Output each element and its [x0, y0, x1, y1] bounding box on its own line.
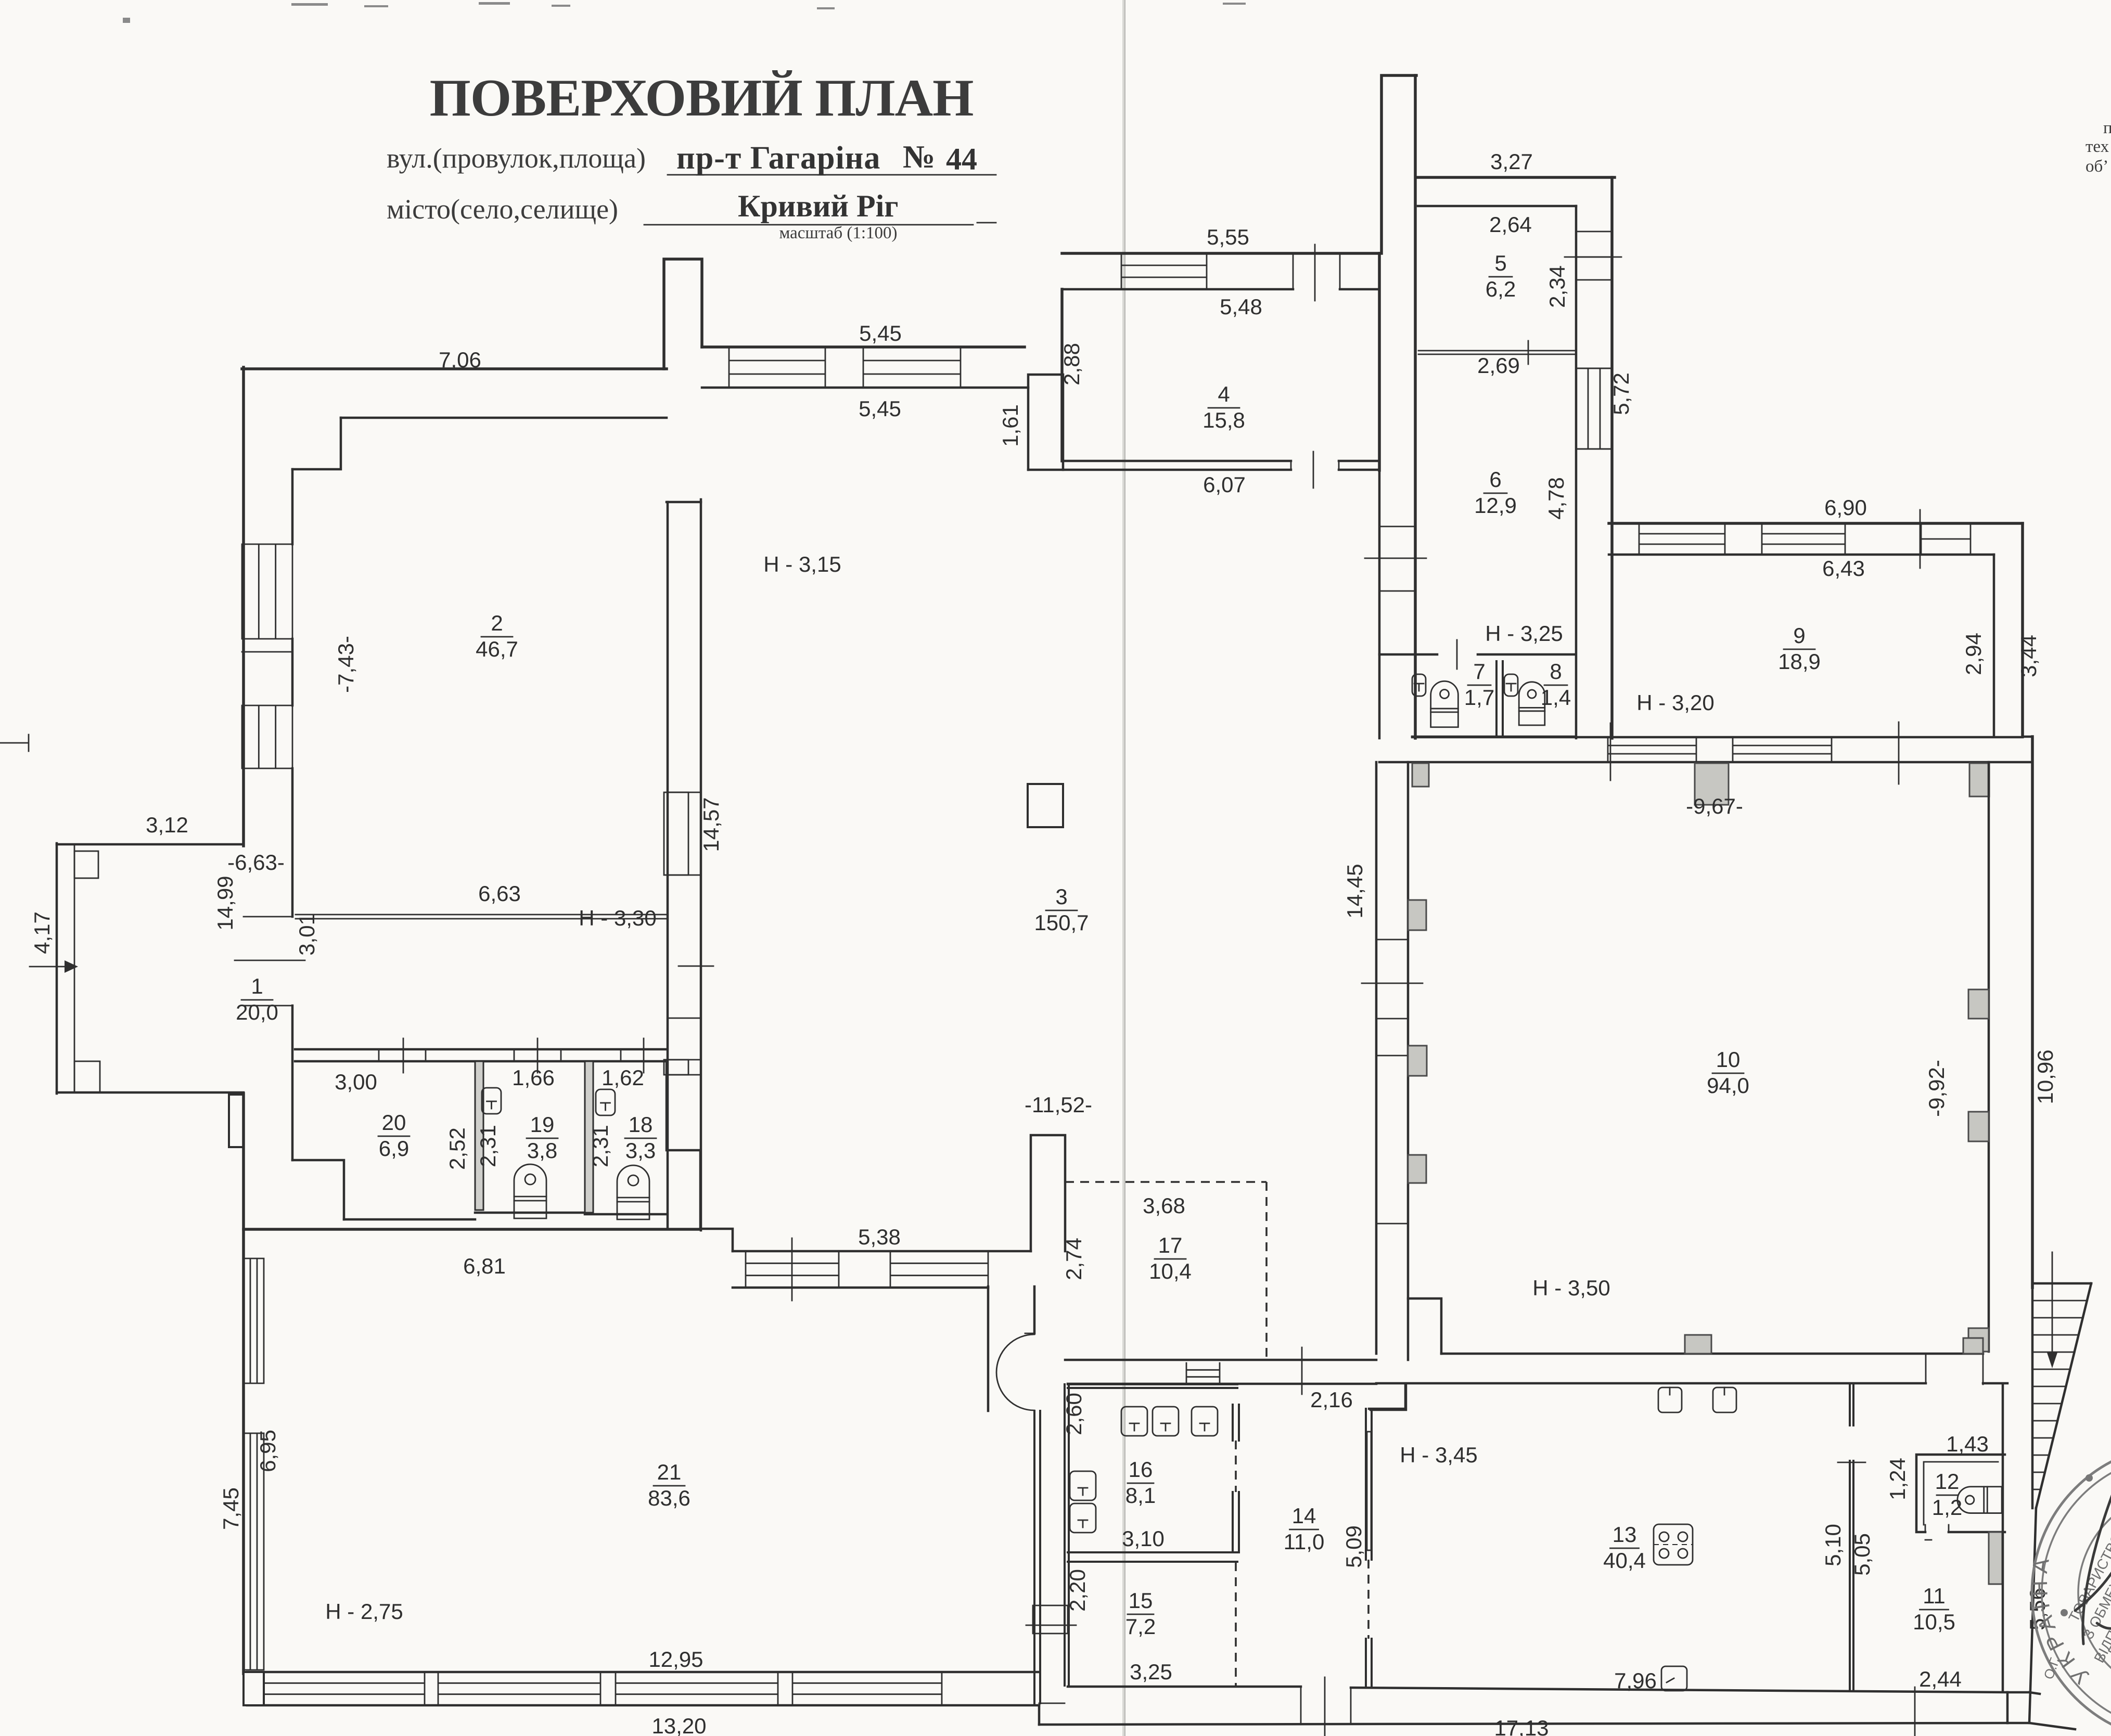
svg-text:3,10: 3,10: [1122, 1526, 1165, 1551]
svg-text:6: 6: [1489, 467, 1501, 492]
svg-text:Кривий Ріг: Кривий Ріг: [738, 189, 899, 223]
svg-text:2,88: 2,88: [1059, 343, 1084, 385]
svg-text:пр-т Гагаріна: пр-т Гагаріна: [676, 140, 880, 176]
svg-text:15,8: 15,8: [1202, 408, 1245, 432]
svg-text:6,2: 6,2: [1486, 277, 1516, 301]
svg-text:10,5: 10,5: [1913, 1610, 1955, 1634]
svg-text:8,1: 8,1: [1125, 1483, 1156, 1508]
svg-text:10: 10: [1716, 1047, 1741, 1072]
svg-text:14: 14: [1292, 1503, 1316, 1528]
svg-text:5,48: 5,48: [1220, 294, 1262, 319]
svg-text:3,00: 3,00: [335, 1070, 377, 1094]
svg-text:9: 9: [1793, 623, 1805, 648]
svg-text:3,44: 3,44: [2016, 635, 2041, 677]
svg-text:2,44: 2,44: [1919, 1667, 1962, 1691]
svg-text:Н - 3,50: Н - 3,50: [1532, 1276, 1610, 1300]
svg-text:-7,43-: -7,43-: [334, 636, 358, 693]
svg-text:1: 1: [251, 974, 263, 998]
svg-text:4: 4: [1218, 382, 1230, 406]
svg-text:1,62: 1,62: [602, 1065, 644, 1090]
svg-text:18,9: 18,9: [1778, 649, 1821, 674]
svg-text:12,9: 12,9: [1474, 493, 1517, 518]
svg-text:5,55: 5,55: [1207, 225, 1249, 249]
svg-text:Н - 3,20: Н - 3,20: [1636, 690, 1714, 715]
svg-text:2,94: 2,94: [1961, 633, 1986, 675]
svg-text:17,13: 17,13: [1494, 1716, 1549, 1736]
svg-text:6,95: 6,95: [255, 1430, 280, 1472]
svg-text:44: 44: [946, 142, 977, 176]
svg-text:3,25: 3,25: [1130, 1660, 1172, 1684]
svg-text:Н - 3,25: Н - 3,25: [1485, 621, 1563, 646]
svg-text:5,38: 5,38: [858, 1225, 901, 1249]
svg-text:1,43: 1,43: [1946, 1432, 1989, 1456]
svg-text:3,12: 3,12: [146, 813, 188, 837]
svg-text:11: 11: [1923, 1584, 1946, 1608]
svg-text:6,63: 6,63: [478, 881, 521, 906]
svg-text:21: 21: [657, 1460, 682, 1484]
svg-text:-6,63-: -6,63-: [227, 850, 285, 875]
svg-text:8: 8: [1550, 659, 1562, 684]
svg-text:6,90: 6,90: [1824, 495, 1867, 520]
svg-text:Н - 3,30: Н - 3,30: [579, 906, 656, 930]
svg-text:5,09: 5,09: [1341, 1525, 1366, 1568]
svg-text:4,78: 4,78: [1544, 477, 1568, 520]
svg-text:20: 20: [382, 1110, 406, 1135]
svg-text:1,4: 1,4: [1541, 685, 1571, 710]
svg-text:3,68: 3,68: [1143, 1193, 1185, 1218]
svg-text:14,99: 14,99: [213, 876, 237, 930]
svg-text:2,74: 2,74: [1061, 1238, 1086, 1280]
svg-text:3: 3: [1055, 884, 1067, 909]
svg-text:2,69: 2,69: [1477, 353, 1520, 378]
svg-text:3,27: 3,27: [1490, 149, 1533, 174]
svg-text:1,66: 1,66: [512, 1065, 555, 1090]
svg-text:94,0: 94,0: [1707, 1073, 1749, 1098]
svg-text:2,52: 2,52: [445, 1127, 469, 1170]
svg-text:1,7: 1,7: [1464, 685, 1494, 710]
svg-text:об’: об’: [2086, 157, 2108, 176]
svg-text:7,2: 7,2: [1125, 1614, 1156, 1639]
svg-text:5,45: 5,45: [859, 321, 902, 345]
svg-text:15: 15: [1129, 1588, 1153, 1613]
svg-text:-9,67-: -9,67-: [1686, 794, 1743, 818]
svg-text:17: 17: [1158, 1233, 1183, 1257]
svg-text:18: 18: [629, 1112, 653, 1137]
svg-text:6,07: 6,07: [1203, 472, 1246, 497]
svg-text:ПОВЕРХОВИЙ ПЛАН: ПОВЕРХОВИЙ ПЛАН: [430, 69, 974, 127]
svg-text:6,9: 6,9: [379, 1136, 409, 1161]
svg-text:2,64: 2,64: [1489, 212, 1532, 237]
svg-text:83,6: 83,6: [648, 1486, 690, 1510]
svg-text:3,8: 3,8: [527, 1138, 557, 1163]
svg-text:6,43: 6,43: [1822, 556, 1865, 581]
svg-text:7,96: 7,96: [1614, 1668, 1657, 1693]
svg-text:7,06: 7,06: [439, 348, 481, 372]
svg-text:-11,52-: -11,52-: [1025, 1092, 1092, 1117]
svg-text:тех: тех: [2086, 137, 2109, 156]
svg-text:13,20: 13,20: [651, 1714, 706, 1736]
svg-text:п: п: [2103, 119, 2111, 137]
svg-text:6,81: 6,81: [463, 1254, 506, 1278]
svg-text:7,45: 7,45: [219, 1487, 243, 1530]
svg-text:4,17: 4,17: [30, 911, 54, 954]
svg-text:масштаб (1:100): масштаб (1:100): [779, 224, 897, 242]
svg-text:10,4: 10,4: [1149, 1259, 1192, 1283]
svg-text:5,10: 5,10: [1821, 1524, 1845, 1566]
svg-text:7: 7: [1473, 659, 1485, 684]
svg-text:46,7: 46,7: [476, 637, 518, 661]
svg-text:Н - 3,45: Н - 3,45: [1400, 1443, 1477, 1467]
svg-text:11,0: 11,0: [1284, 1529, 1325, 1554]
svg-text:2,31: 2,31: [476, 1125, 500, 1167]
svg-text:2,31: 2,31: [588, 1125, 612, 1167]
svg-text:3,3: 3,3: [625, 1138, 656, 1163]
svg-text:20,0: 20,0: [236, 1000, 278, 1024]
svg-text:-9,92-: -9,92-: [1924, 1060, 1949, 1117]
svg-text:5,05: 5,05: [1850, 1533, 1874, 1576]
svg-text:2,20: 2,20: [1065, 1569, 1090, 1612]
svg-text:16: 16: [1129, 1457, 1153, 1482]
svg-text:вул.(провулок,площа): вул.(провулок,площа): [387, 143, 646, 174]
svg-text:19: 19: [530, 1112, 555, 1137]
svg-text:12,95: 12,95: [648, 1647, 703, 1671]
svg-text:5,72: 5,72: [1609, 372, 1633, 415]
svg-text:2,34: 2,34: [1545, 265, 1569, 308]
svg-text:місто(село,селище): місто(село,селище): [387, 194, 618, 225]
svg-text:№: №: [903, 139, 936, 175]
svg-text:150,7: 150,7: [1034, 910, 1089, 935]
svg-text:2,60: 2,60: [1061, 1393, 1086, 1435]
svg-text:13: 13: [1613, 1522, 1637, 1547]
svg-text:5,45: 5,45: [859, 396, 901, 421]
svg-text:Н - 3,15: Н - 3,15: [763, 552, 841, 576]
svg-text:14,57: 14,57: [699, 797, 723, 852]
svg-text:Н - 2,75: Н - 2,75: [325, 1599, 403, 1624]
svg-text:1,2: 1,2: [1932, 1495, 1962, 1520]
svg-text:1,24: 1,24: [1885, 1458, 1910, 1500]
svg-text:40,4: 40,4: [1603, 1548, 1646, 1573]
svg-text:12: 12: [1935, 1469, 1960, 1494]
svg-text:10,96: 10,96: [2033, 1049, 2057, 1104]
svg-text:14,45: 14,45: [1342, 864, 1367, 918]
svg-text:2,16: 2,16: [1310, 1387, 1353, 1412]
svg-text:2: 2: [491, 611, 503, 635]
svg-text:1,61: 1,61: [998, 404, 1022, 447]
svg-text:5: 5: [1494, 251, 1506, 275]
